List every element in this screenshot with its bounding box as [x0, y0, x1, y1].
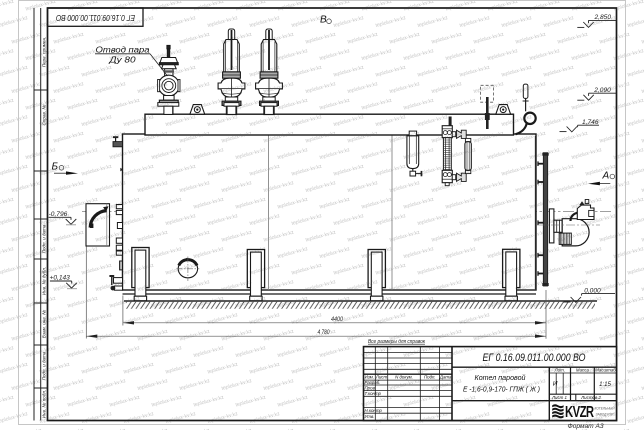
svg-text:Подп.: Подп. [424, 375, 436, 380]
svg-text:N докум.: N докум. [395, 375, 413, 380]
svg-text:Т.контр: Т.контр [365, 391, 382, 396]
svg-text:Н.контр: Н.контр [365, 408, 383, 413]
svg-text:Дата: Дата [439, 375, 452, 380]
svg-text:КОТЕЛЬНЫЙ: КОТЕЛЬНЫЙ [595, 407, 615, 411]
svg-text:Подп. и дата: Подп. и дата [42, 351, 47, 380]
svg-text:+0,143: +0,143 [50, 275, 71, 282]
svg-text:Утв.: Утв. [365, 414, 375, 419]
